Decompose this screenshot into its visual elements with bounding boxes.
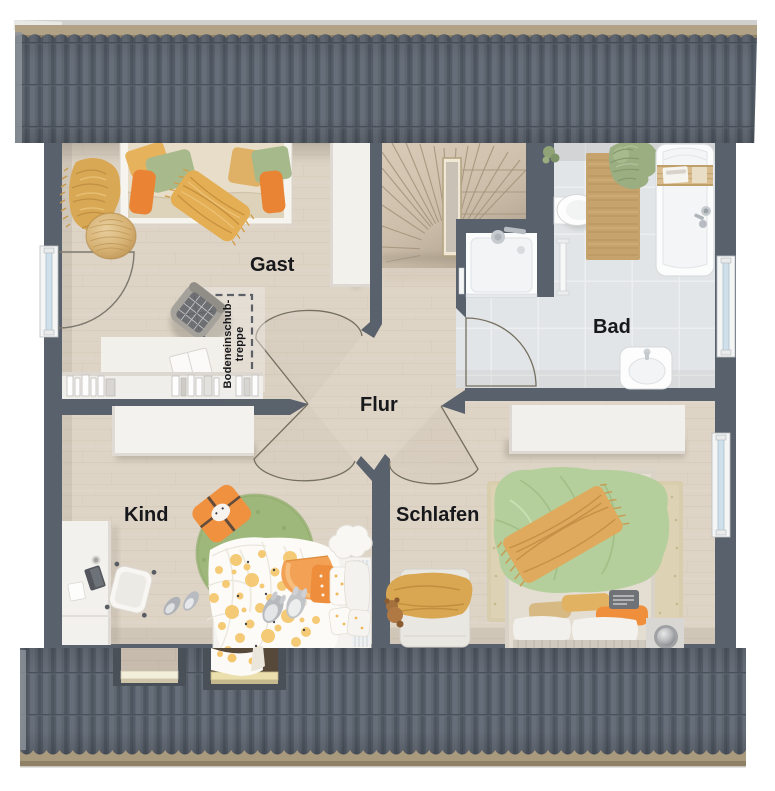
svg-text:Gast: Gast (250, 254, 295, 276)
svg-text:Kind: Kind (124, 504, 168, 526)
svg-text:treppe: treppe (234, 327, 246, 362)
svg-text:Bodeneinschub-: Bodeneinschub- (222, 299, 234, 388)
svg-text:Flur: Flur (360, 394, 398, 416)
svg-text:Bad: Bad (593, 316, 631, 338)
svg-text:Schlafen: Schlafen (396, 504, 479, 526)
